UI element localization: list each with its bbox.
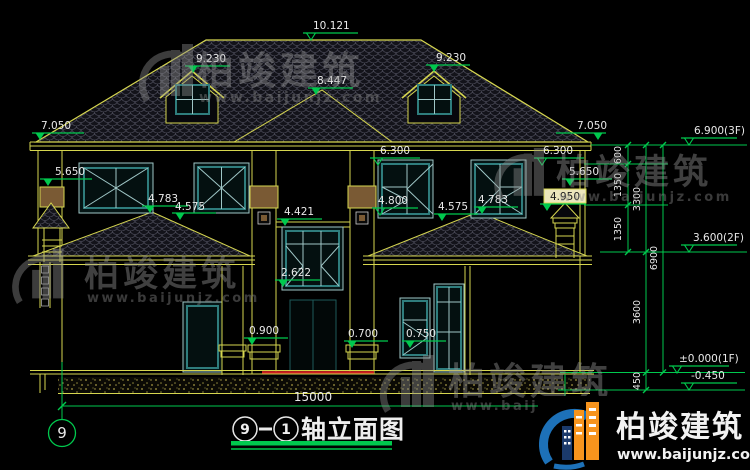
elev-label-porch-floor-right: 0.750 — [406, 328, 436, 340]
watermark-url: www.baijunjz.com — [87, 291, 260, 306]
elev-label-head-center: 6.300 — [380, 145, 410, 157]
brand-banner-name: 柏竣建筑 — [616, 410, 744, 445]
elev-label-floor1: ±0.000(1F) — [679, 353, 739, 365]
title-bubble-left: 9 — [240, 422, 250, 438]
window-2f-1 — [79, 163, 153, 213]
elev-label-floor3: 6.900(3F) — [694, 125, 745, 137]
elev-label-porch-ridge-right: 4.783 — [478, 194, 508, 206]
elev-label-eave-right: 7.050 — [577, 120, 607, 132]
dim-overall-width: 15000 — [294, 390, 332, 404]
title-underline-thick — [231, 441, 392, 446]
title-bubble-right: 1 — [281, 422, 291, 438]
watermark-brand: 柏竣建筑 — [556, 152, 712, 193]
window-1f-left — [183, 302, 222, 372]
elevation-canvas: 10.121 9.230 9.230 8.447 7.050 7.050 6.3… — [0, 0, 750, 470]
brand-banner-url: www.baijunjz.com — [617, 447, 750, 463]
watermark-url: www.baijunjz.com — [199, 90, 382, 106]
elev-label-grade: -0.450 — [691, 370, 725, 382]
elev-label-ridge: 10.121 — [313, 20, 350, 32]
elev-label-eave-left: 7.050 — [41, 120, 71, 132]
watermark-url: www.baijunjz.com — [559, 190, 732, 205]
elev-label-dormer-right: 9.230 — [436, 52, 466, 64]
brand-banner: 柏竣建筑 www.baijunjz.com — [538, 396, 750, 470]
elev-label-sill-right: 4.800 — [378, 195, 408, 207]
drawing-title: 轴立面图 — [301, 415, 405, 444]
elev-label-porch-hip-right: 4.575 — [438, 201, 468, 213]
elev-label-bay-sill: 2.622 — [281, 267, 311, 279]
elev-label-porch-hip-left: 4.575 — [175, 201, 205, 213]
dim-1350-lower: 1350 — [613, 217, 624, 241]
watermark-brand: 柏竣建筑 — [196, 49, 364, 93]
window-2f-3 — [378, 160, 433, 218]
cad-elevation-drawing: 10.121 9.230 9.230 8.447 7.050 7.050 6.3… — [0, 0, 750, 470]
elev-label-porch-ridge-left: 4.783 — [148, 193, 178, 205]
entrance-door — [290, 300, 336, 372]
elev-label-plinth: 0.900 — [249, 325, 279, 337]
axis-bubble-number: 9 — [57, 424, 67, 442]
dim-450: 450 — [632, 372, 643, 390]
door-right-wing — [434, 284, 464, 372]
watermark-brand: 柏竣建筑 — [84, 254, 240, 295]
dim-3600: 3600 — [632, 300, 643, 324]
elev-label-porch-floor: 0.700 — [348, 328, 378, 340]
elev-label-floor2: 3.600(2F) — [693, 232, 744, 244]
elev-label-chimney-left: 5.650 — [55, 166, 85, 178]
dim-6900: 6900 — [649, 246, 660, 270]
title-dash — [259, 428, 272, 431]
elev-label-bay-head: 4.421 — [284, 206, 314, 218]
